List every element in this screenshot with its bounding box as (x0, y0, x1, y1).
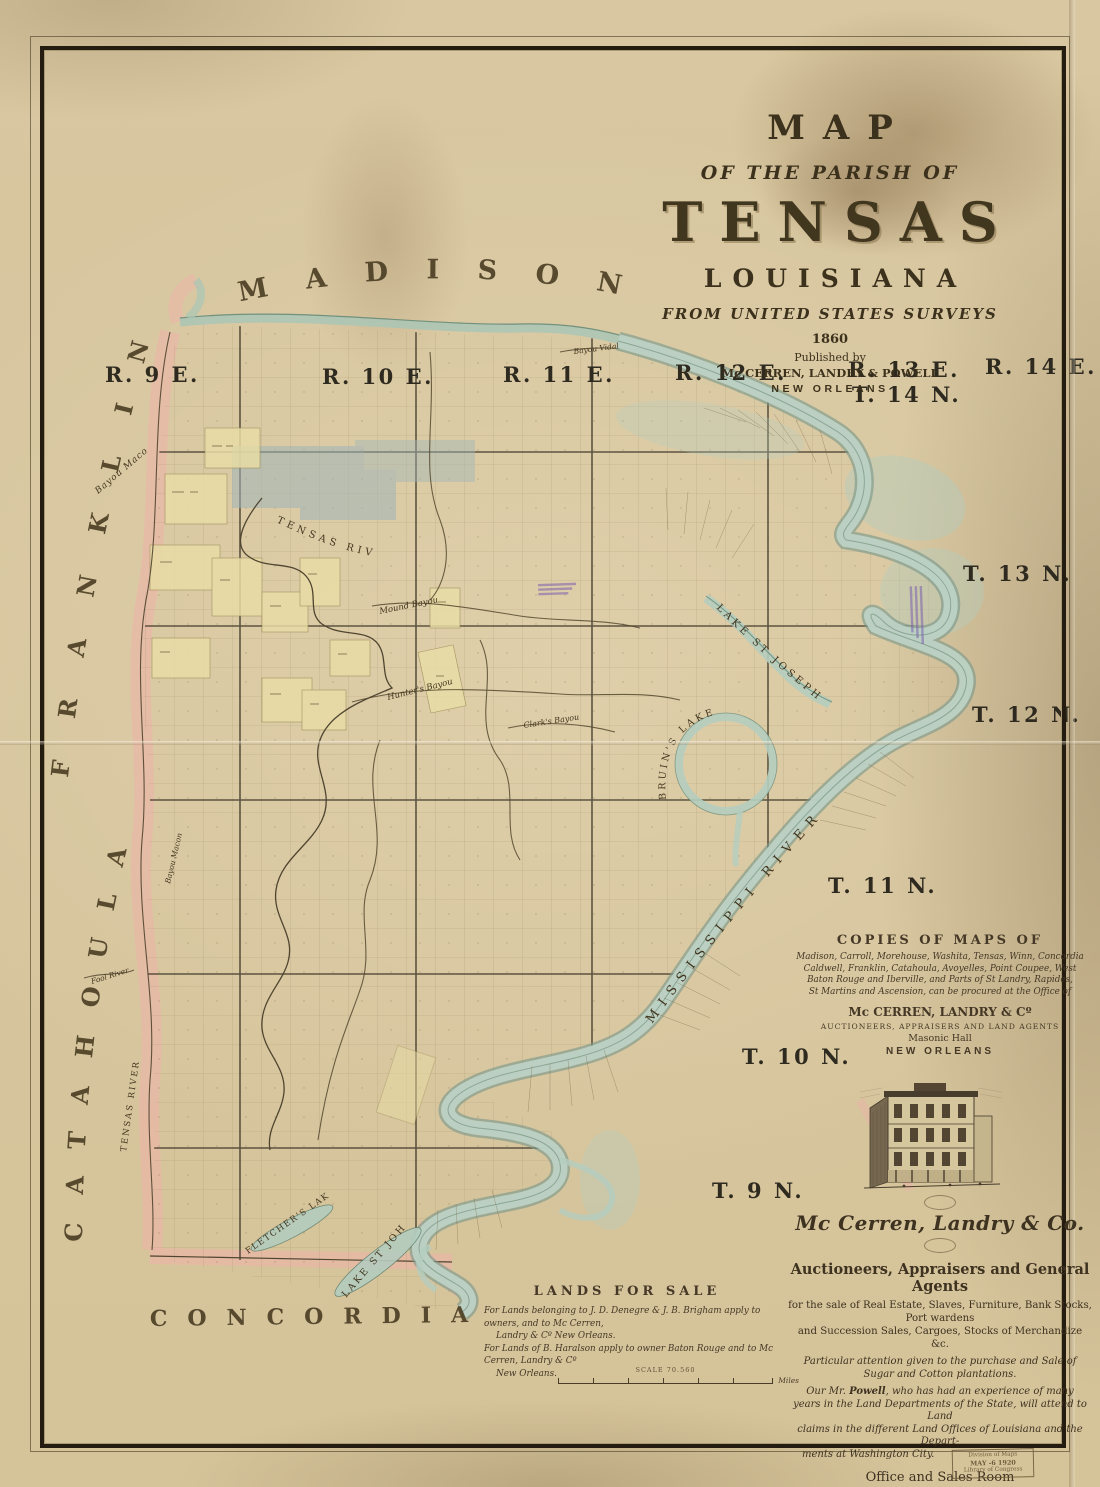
title-source: FROM UNITED STATES SURVEYS (615, 305, 1045, 323)
library-stamp: Division of Maps MAY -6 1920 Library of … (952, 1448, 1035, 1478)
copies-line: Madison, Carroll, Morehouse, Washita, Te… (792, 952, 1088, 964)
scale-unit: Miles (778, 1376, 799, 1385)
flourish-ornament-left (924, 1195, 956, 1210)
ad-note-pre: Our Mr. (806, 1386, 849, 1397)
lands-line: Landry & Cº New Orleans. (496, 1330, 792, 1343)
ad-note-line: Particular attention given to the purcha… (788, 1356, 1092, 1369)
ad-note-line: Sugar and Cotton plantations. (788, 1369, 1092, 1382)
copies-role: AUCTIONEERS, APPRAISERS AND LAND AGENTS (792, 1022, 1088, 1031)
fold-crease-horizontal (0, 741, 1100, 745)
copies-line: Baton Rouge and Iberville, and Parts of … (792, 975, 1088, 987)
ad-note-line: claims in the different Land Offices of … (788, 1424, 1092, 1449)
copies-heading: COPIES OF MAPS OF (792, 933, 1088, 948)
copies-of-maps-block: COPIES OF MAPS OF Madison, Carroll, More… (792, 933, 1088, 1057)
ad-services-line: and Succession Sales, Cargoes, Stocks of… (788, 1325, 1092, 1351)
ad-powell-name: Powell (849, 1386, 886, 1397)
title-year: 1860 (615, 332, 1045, 347)
scale-tick (772, 1378, 773, 1383)
title-of-the-parish-of: OF THE PARISH OF (615, 162, 1045, 184)
ad-note-post: , who has had an experience of many (886, 1386, 1074, 1397)
scale-tick (663, 1378, 664, 1383)
ad-office: Office and Sales Room (788, 1470, 1092, 1485)
ad-firm: Mc Cerren, Landry & Co. (795, 1211, 1084, 1235)
lands-line: For Lands belonging to J. D. Denegre & J… (484, 1305, 792, 1330)
map-sheet: MADISON FRANKLIN CATAHOULA CONCORDIA MIS… (0, 0, 1100, 1487)
advertisement-block: Mc Cerren, Landry & Co. Auctioneers, App… (788, 1192, 1092, 1487)
scale-tick (593, 1378, 594, 1383)
copies-line: Caldwell, Franklin, Catahoula, Avoyelles… (792, 964, 1088, 976)
scale-tick (733, 1378, 734, 1383)
copies-firm: Mc CERREN, LANDRY & Cº (792, 1005, 1088, 1019)
scale-bar: SCALE 70.560 Miles (558, 1366, 773, 1384)
scale-tick (558, 1378, 559, 1383)
title-city: NEW ORLEANS (615, 383, 1045, 395)
stamp-library: Library of Congress (953, 1466, 1033, 1475)
copies-line: St Martins and Ascension, can be procure… (792, 987, 1088, 999)
flourish-ornament-right (924, 1238, 956, 1253)
title-parish-name: TENSAS (615, 190, 1045, 254)
scale-label: SCALE 70.560 (558, 1366, 773, 1374)
scale-tick (698, 1378, 699, 1383)
ad-note-line: ments at Washington City. (802, 1449, 1092, 1462)
ad-note-line: Our Mr. Powell, who has had an experienc… (788, 1386, 1092, 1399)
ad-role: Auctioneers, Appraisers and General Agen… (788, 1261, 1092, 1295)
ad-note-line: years in the Land Departments of the Sta… (788, 1399, 1092, 1424)
copies-city: NEW ORLEANS (792, 1046, 1088, 1057)
title-published-by: Published by (615, 351, 1045, 364)
title-state: LOUISIANA (615, 264, 1045, 293)
title-map: MAP (615, 108, 1045, 148)
copies-hall: Masonic Hall (792, 1033, 1088, 1044)
ad-firm-row: Mc Cerren, Landry & Co. (788, 1192, 1092, 1254)
title-publisher: Mc CERREN, LANDRY & POWELL (615, 366, 1045, 380)
lands-line: For Lands of B. Haralson apply to owner … (484, 1343, 792, 1368)
scale-tick (628, 1378, 629, 1383)
title-block: MAP OF THE PARISH OF TENSAS LOUISIANA FR… (615, 108, 1045, 395)
lands-heading: LANDS FOR SALE (462, 1284, 792, 1299)
scale-bar-rule: Miles (558, 1377, 773, 1384)
ad-services-line: for the sale of Real Estate, Slaves, Fur… (788, 1299, 1092, 1325)
